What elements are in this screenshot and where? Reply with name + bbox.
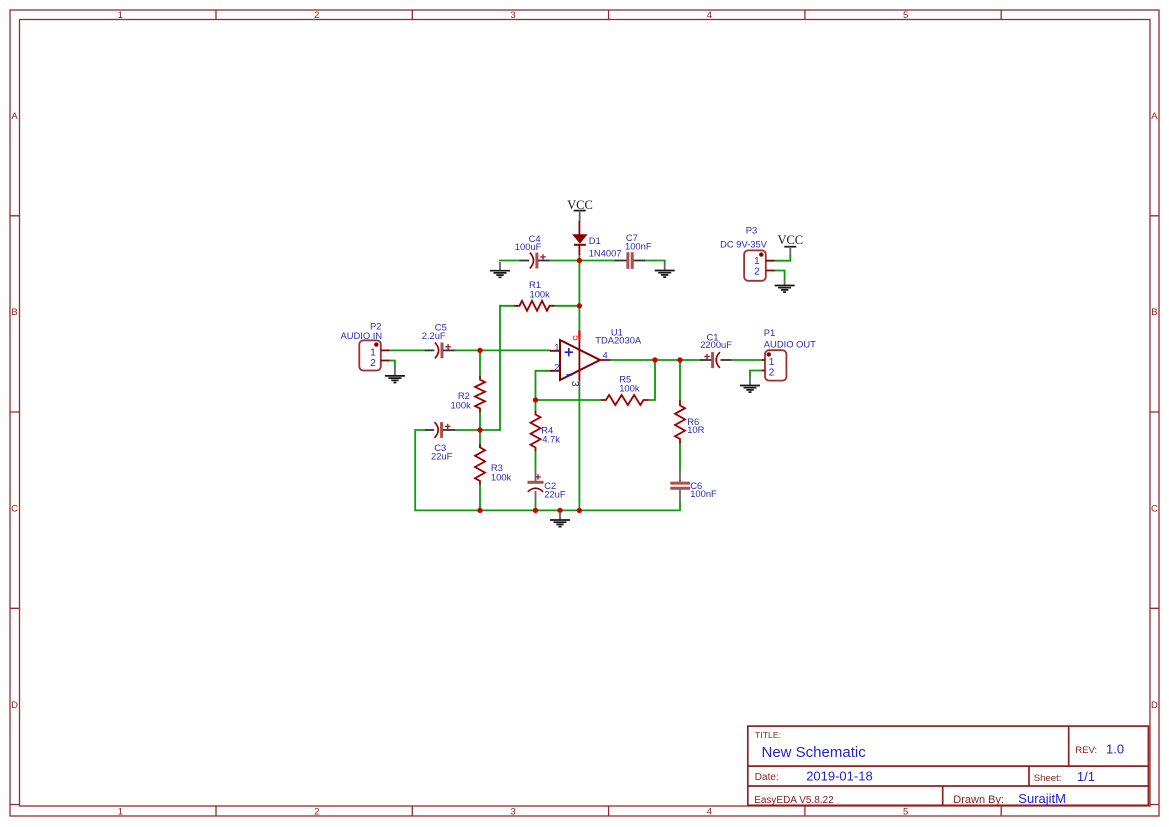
- svg-text:100uF: 100uF: [515, 241, 542, 252]
- svg-text:2: 2: [554, 361, 559, 372]
- svg-text:Sheet:: Sheet:: [1034, 773, 1062, 784]
- svg-text:1.0: 1.0: [1106, 742, 1124, 757]
- svg-text:4: 4: [603, 350, 608, 361]
- svg-text:100k: 100k: [619, 382, 640, 393]
- svg-text:P1: P1: [764, 327, 775, 338]
- svg-text:D: D: [11, 700, 18, 711]
- svg-text:TDA2030A: TDA2030A: [595, 334, 642, 345]
- svg-text:100nF: 100nF: [690, 488, 717, 499]
- svg-text:D1: D1: [589, 235, 601, 246]
- svg-text:4: 4: [707, 10, 712, 21]
- svg-text:100k: 100k: [530, 288, 551, 299]
- svg-text:100k: 100k: [450, 400, 471, 411]
- svg-text:1: 1: [118, 10, 123, 21]
- svg-text:SurajitM: SurajitM: [1018, 791, 1066, 806]
- svg-text:B: B: [11, 307, 17, 318]
- svg-text:100k: 100k: [491, 472, 512, 483]
- svg-text:REV:: REV:: [1075, 745, 1097, 756]
- svg-text:AUDIO IN: AUDIO IN: [341, 330, 383, 341]
- svg-text:2: 2: [314, 807, 319, 818]
- svg-text:VCC: VCC: [567, 198, 593, 212]
- svg-text:Date:: Date:: [755, 772, 779, 783]
- svg-text:TITLE:: TITLE:: [755, 730, 781, 740]
- svg-text:2: 2: [769, 367, 775, 378]
- svg-text:2200uF: 2200uF: [700, 339, 732, 350]
- svg-text:5: 5: [570, 335, 581, 341]
- svg-text:P3: P3: [746, 225, 757, 236]
- svg-text:1: 1: [769, 357, 775, 368]
- svg-text:C: C: [11, 504, 18, 515]
- svg-text:2019-01-18: 2019-01-18: [806, 768, 873, 783]
- svg-text:2: 2: [314, 10, 319, 21]
- svg-text:A: A: [1151, 111, 1158, 122]
- svg-text:3: 3: [510, 807, 515, 818]
- svg-text:2: 2: [754, 266, 760, 277]
- svg-text:1: 1: [118, 807, 123, 818]
- svg-text:2: 2: [370, 358, 376, 369]
- svg-text:4.7k: 4.7k: [542, 434, 560, 445]
- svg-text:1: 1: [554, 341, 559, 352]
- svg-text:5: 5: [903, 807, 908, 818]
- svg-text:3: 3: [510, 10, 515, 21]
- svg-text:22uF: 22uF: [431, 451, 453, 462]
- svg-text:5: 5: [903, 10, 908, 21]
- svg-text:3: 3: [569, 381, 580, 387]
- svg-text:22uF: 22uF: [544, 488, 566, 499]
- svg-text:100nF: 100nF: [625, 240, 652, 251]
- svg-text:New Schematic: New Schematic: [762, 744, 867, 761]
- svg-text:C: C: [1151, 504, 1158, 515]
- svg-text:EasyEDA V5.8.22: EasyEDA V5.8.22: [754, 795, 834, 806]
- svg-text:A: A: [11, 111, 18, 122]
- svg-text:10R: 10R: [687, 424, 704, 435]
- svg-text:VCC: VCC: [777, 233, 803, 247]
- svg-text:DC 9V-35V: DC 9V-35V: [720, 239, 768, 250]
- svg-text:1N4007: 1N4007: [589, 247, 622, 258]
- svg-text:4: 4: [707, 807, 712, 818]
- svg-text:D: D: [1151, 700, 1158, 711]
- svg-text:1/1: 1/1: [1077, 769, 1095, 784]
- svg-text:AUDIO OUT: AUDIO OUT: [764, 339, 816, 350]
- svg-text:Drawn By:: Drawn By:: [953, 794, 1004, 806]
- svg-text:B: B: [1151, 307, 1157, 318]
- svg-text:2.2uF: 2.2uF: [422, 330, 446, 341]
